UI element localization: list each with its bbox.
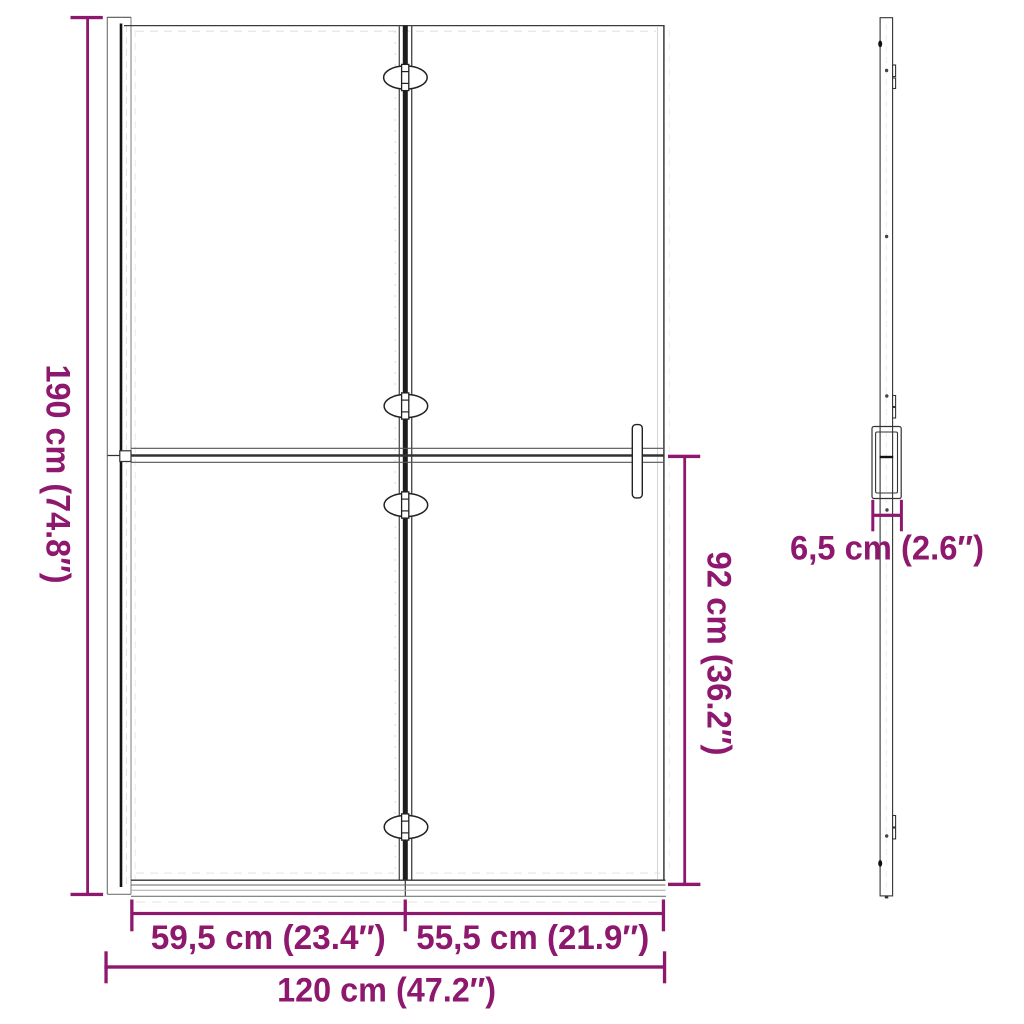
svg-text:55,5 cm (21.9″): 55,5 cm (21.9″) (416, 919, 649, 957)
svg-text:92 cm (36.2″): 92 cm (36.2″) (699, 552, 737, 756)
svg-text:120 cm (47.2″): 120 cm (47.2″) (277, 972, 496, 1010)
svg-text:6,5 cm (2.6″): 6,5 cm (2.6″) (790, 529, 984, 567)
svg-text:190 cm (74.8″): 190 cm (74.8″) (39, 365, 77, 584)
svg-text:59,5 cm (23.4″): 59,5 cm (23.4″) (151, 919, 386, 957)
